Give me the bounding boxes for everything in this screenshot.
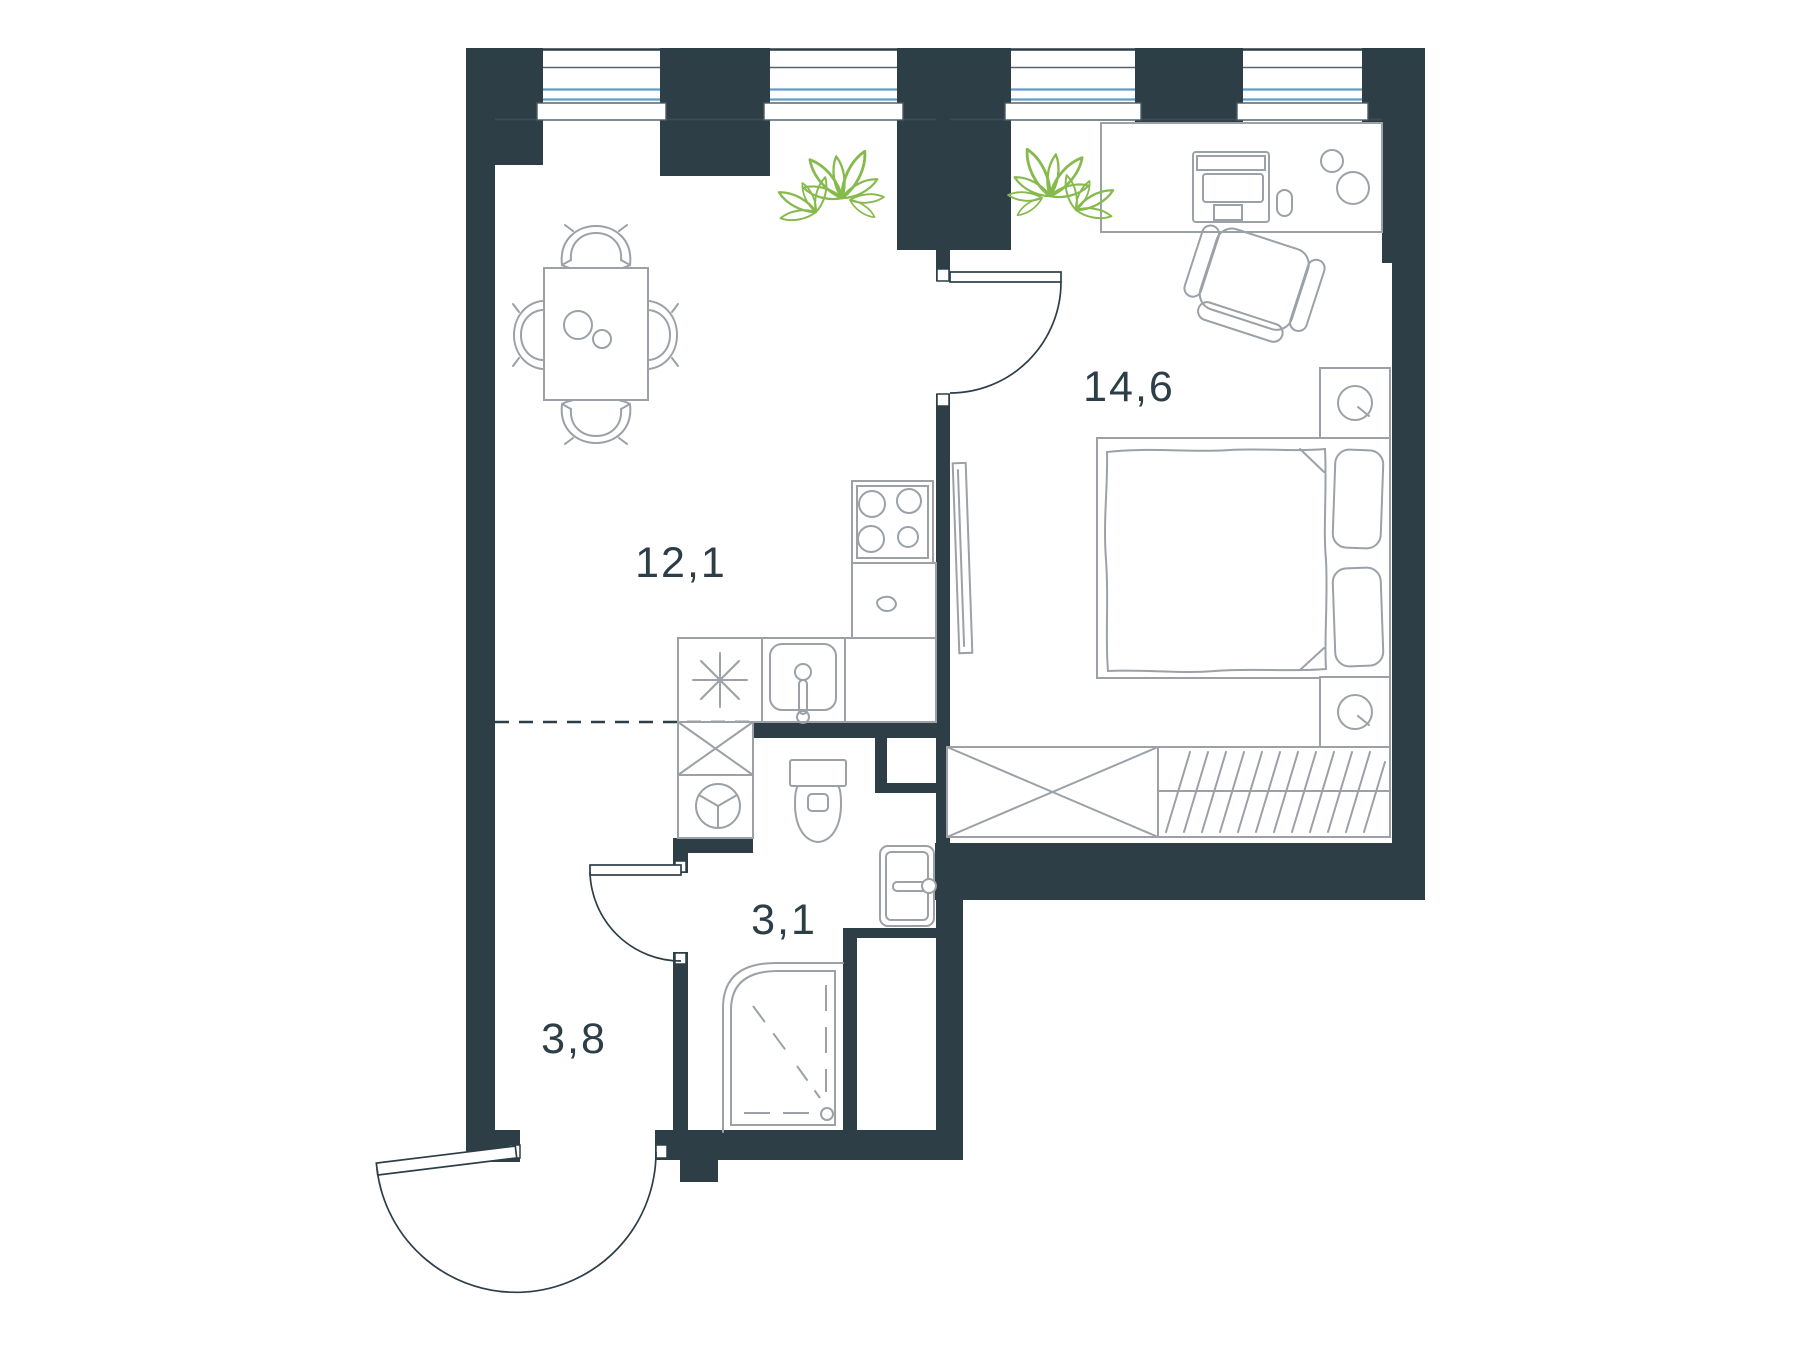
drain-icon [821,1108,833,1120]
kitchen-furniture [495,481,936,838]
bathroom-west-wall [673,952,688,1133]
bathroom-south-wall [655,1130,963,1160]
dining-table [544,268,648,400]
wardrobe [947,747,1390,837]
plant-icon [1004,146,1115,220]
window-4 [1237,68,1368,121]
window-2 [764,68,903,121]
entry-door [376,1145,667,1292]
bedroom-door [937,269,1061,406]
room-label-bathroom: 3,1 [751,896,817,944]
right-wall-lower [1392,263,1425,900]
toilet-tank [790,760,846,786]
tv [953,463,973,653]
kitchen-counter [845,563,936,722]
refrigerator [678,638,762,722]
dining-chair-top [562,225,631,271]
bathroom-door [590,861,686,964]
desk-chair [1177,219,1328,350]
left-wall [466,160,495,1135]
bathroom-east-wall [843,928,857,1133]
window-1 [537,68,666,121]
shower-cabin [723,963,843,1132]
door-frame-notch [656,1145,667,1158]
window-3 [1005,68,1141,121]
stove [852,481,933,563]
pillar-top-left [466,48,543,165]
bedroom-south-wall [935,843,1425,900]
room-label-bedroom: 14,6 [1083,363,1175,411]
dining-chair-bottom [562,398,631,444]
washing-machine [678,775,753,838]
right-wall-upper [1382,120,1425,263]
shaft-bottom-wall [875,783,936,793]
kitchen-sink [762,638,845,723]
nightstand-bottom [1320,677,1390,747]
floor-plan: 12,1 14,6 3,1 3,8 [0,0,1800,1350]
utility-door [880,846,936,926]
bathroom-fixtures [723,760,936,1132]
bedroom-door-leaf [950,272,1061,282]
entry-door-leaf [376,1146,516,1175]
pillar-3 [897,48,1011,250]
alcove-bottom-wall [857,928,936,938]
bathroom-door-leaf [590,865,681,875]
bathroom-door-swing [590,872,681,961]
bathroom-nw-wall [673,838,753,853]
shower-glass-mark [753,1006,790,1056]
snowflake-icon [693,653,747,707]
duct-right-wall [936,900,963,1133]
door-frame-notch [675,953,686,964]
bathroom-north-wall [753,723,936,738]
floor-plan-drawing: 12,1 14,6 3,1 3,8 [0,0,1800,1350]
dining-set [513,225,678,444]
room-label-hallway: 3,8 [541,1015,607,1063]
plant-icon [777,148,888,222]
pillar-2 [660,48,770,176]
south-wall-foot [680,1160,718,1182]
door-frame-notch [937,269,949,281]
utility-cabinet [678,722,753,775]
blanket [1105,449,1327,672]
double-bed [1097,438,1390,678]
nightstand-top [1320,368,1390,438]
bedroom-furniture [947,123,1390,837]
door-frame-notch [937,394,949,406]
room-label-kitchen-living: 12,1 [635,539,727,587]
toilet [790,760,846,842]
entry-door-swing [377,1152,656,1292]
bedroom-door-swing [950,282,1061,393]
